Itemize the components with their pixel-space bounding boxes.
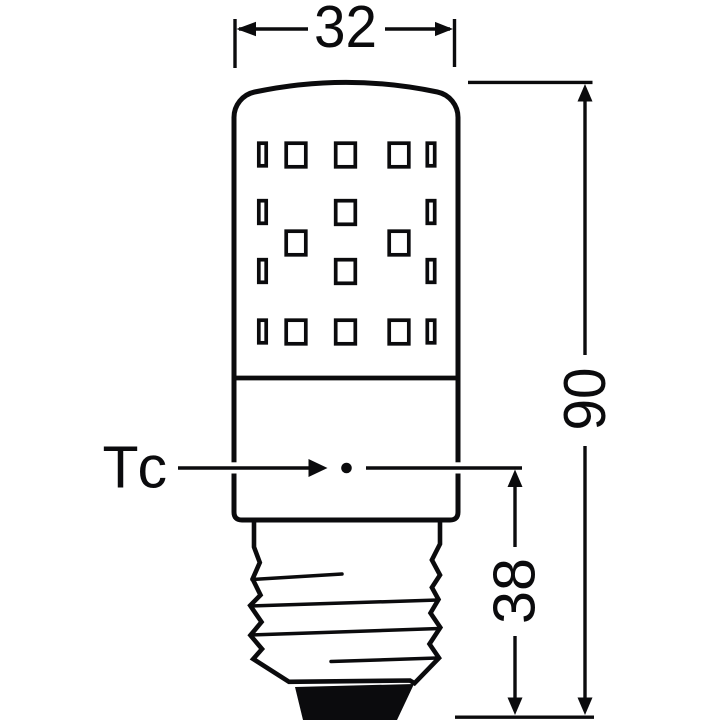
svg-text:Tc: Tc bbox=[103, 435, 173, 501]
svg-text:32: 32 bbox=[314, 0, 377, 60]
svg-text:38: 38 bbox=[482, 558, 548, 624]
svg-text:90: 90 bbox=[552, 368, 618, 431]
